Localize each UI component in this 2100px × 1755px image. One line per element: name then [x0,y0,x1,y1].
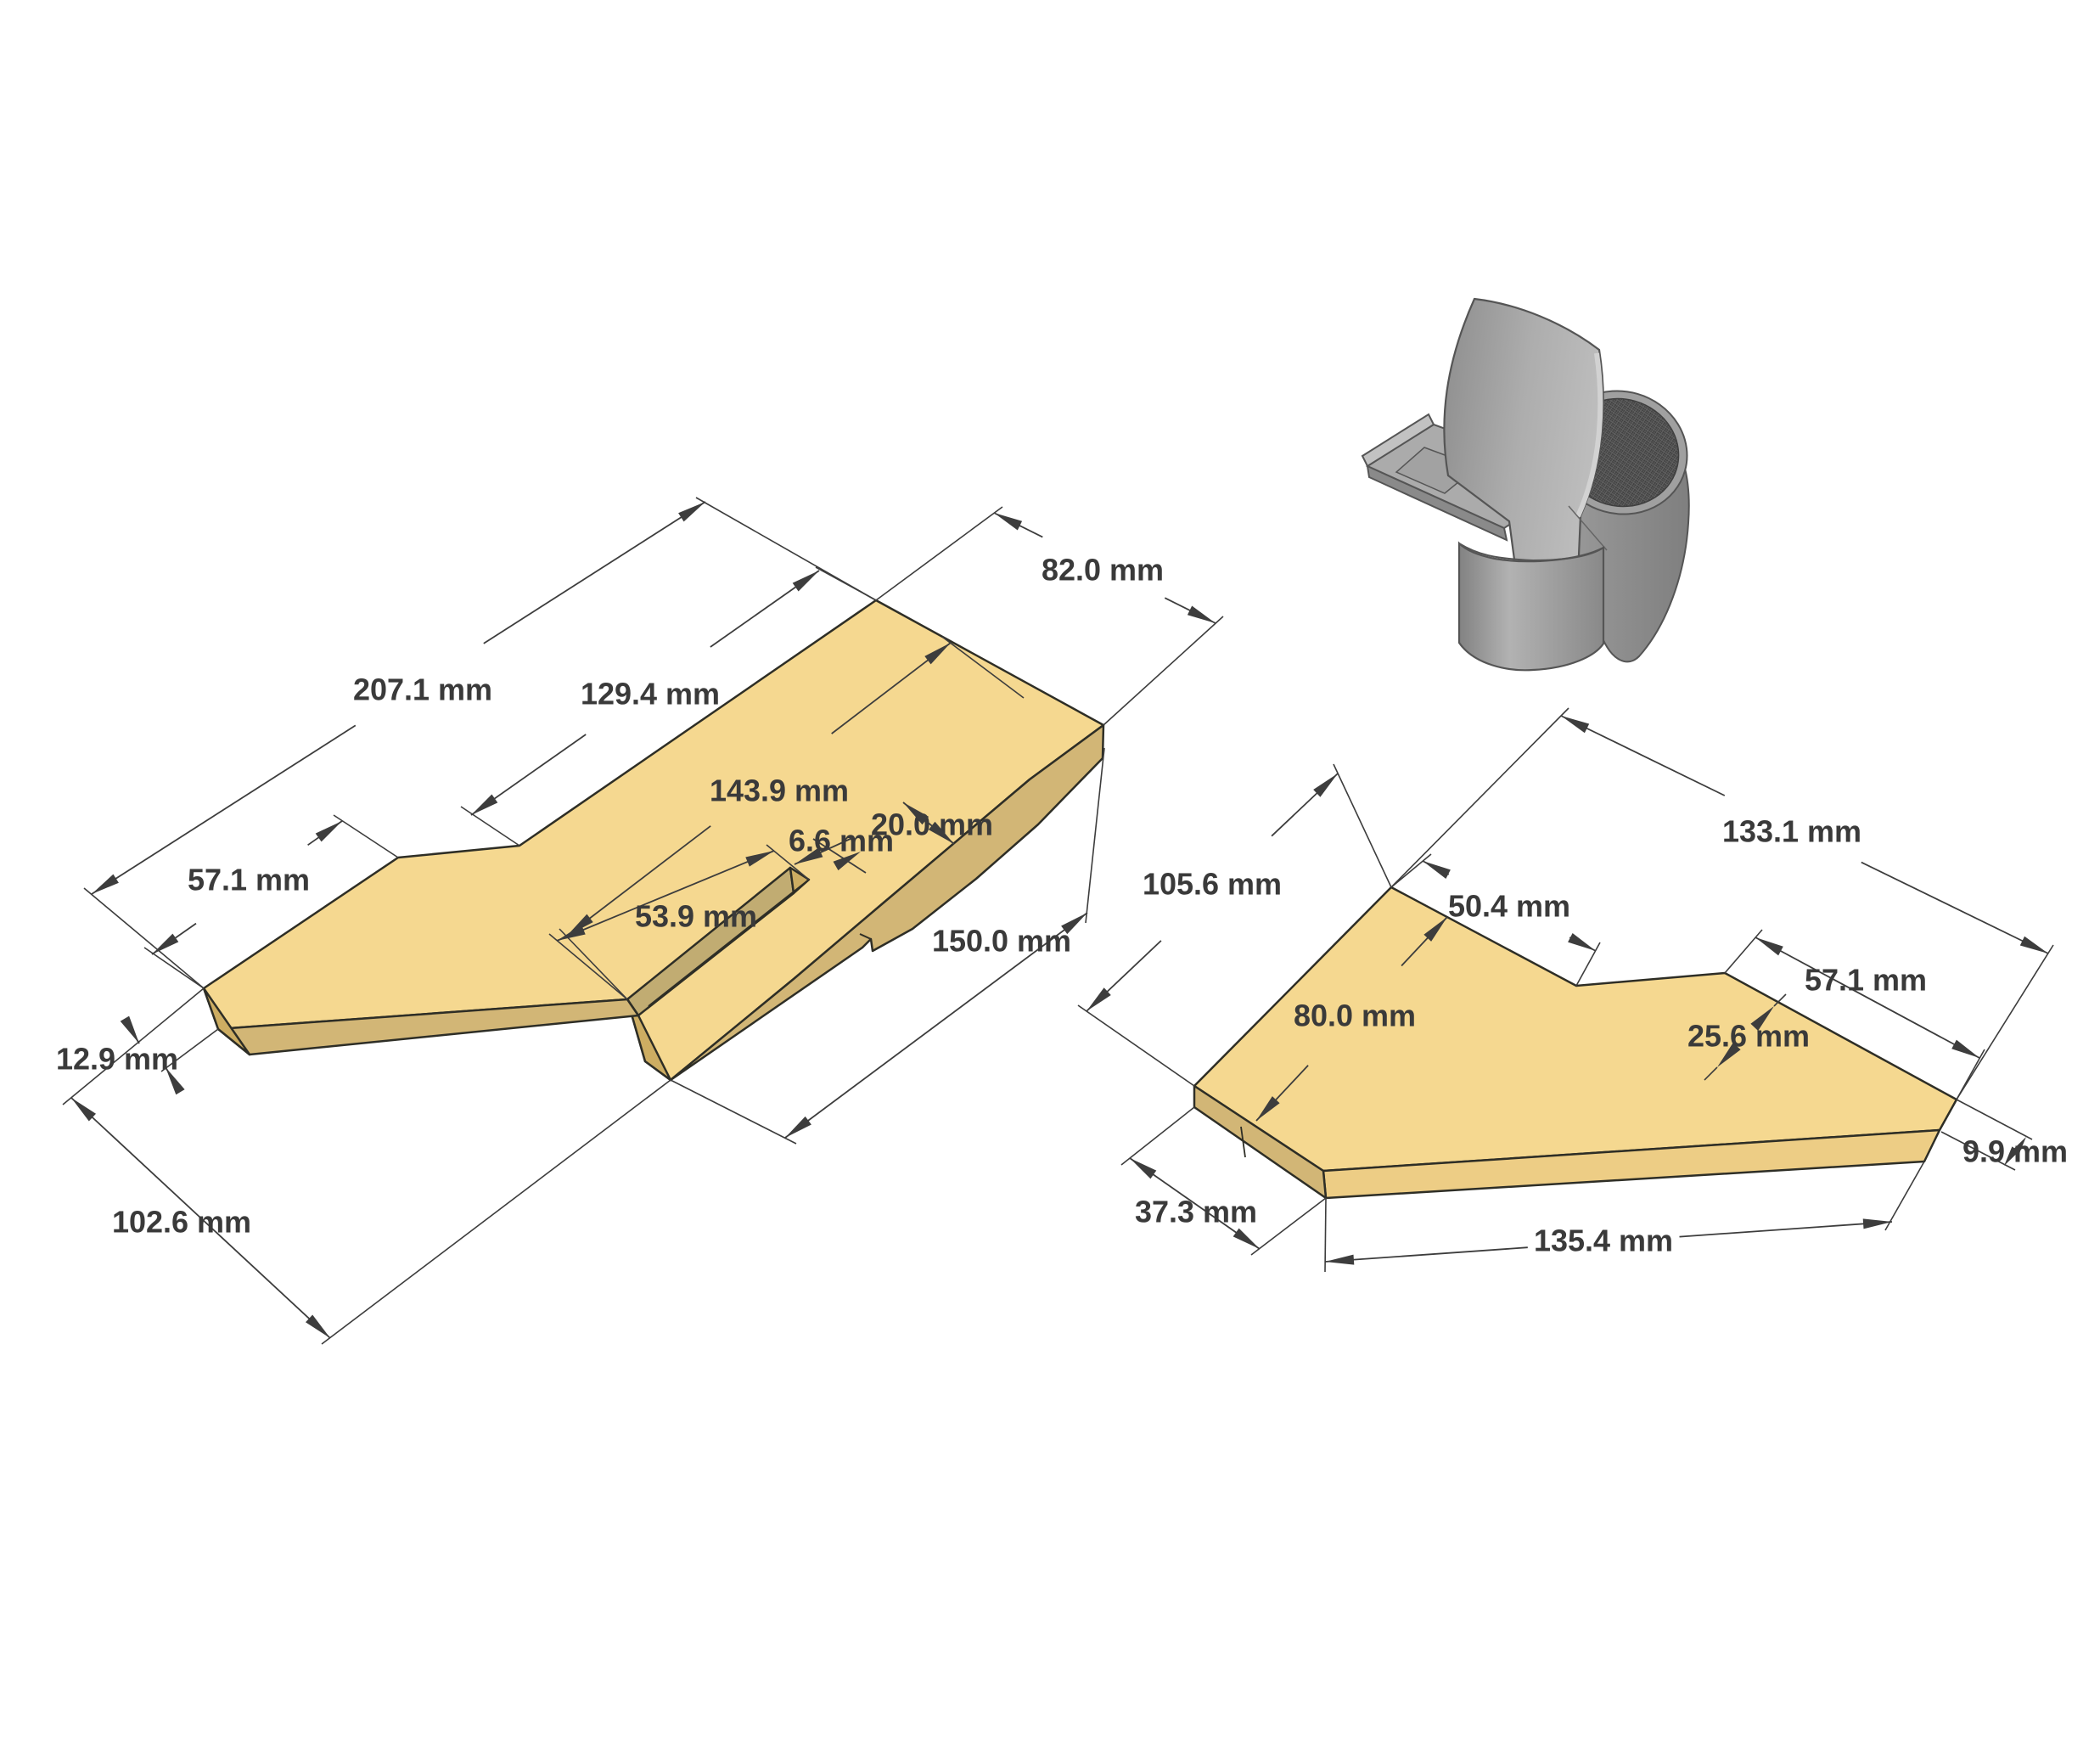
svg-text:57.1 mm: 57.1 mm [1805,962,1927,997]
svg-text:37.3 mm: 37.3 mm [1135,1194,1257,1229]
svg-text:82.0 mm: 82.0 mm [1042,552,1164,587]
svg-text:53.9 mm: 53.9 mm [635,898,757,933]
svg-text:135.4 mm: 135.4 mm [1534,1223,1673,1257]
svg-text:50.4 mm: 50.4 mm [1448,888,1570,923]
svg-text:20.0 mm: 20.0 mm [871,807,993,841]
svg-text:80.0 mm: 80.0 mm [1294,998,1416,1032]
svg-text:105.6 mm: 105.6 mm [1143,866,1282,901]
svg-text:133.1 mm: 133.1 mm [1722,813,1861,848]
svg-text:207.1 mm: 207.1 mm [353,672,492,706]
svg-text:12.9 mm: 12.9 mm [56,1041,178,1076]
svg-text:102.6 mm: 102.6 mm [112,1204,251,1239]
svg-text:143.9 mm: 143.9 mm [710,773,849,807]
svg-text:57.1 mm: 57.1 mm [188,862,310,897]
svg-text:150.0 mm: 150.0 mm [932,923,1071,958]
svg-text:25.6 mm: 25.6 mm [1687,1018,1810,1053]
svg-text:129.4 mm: 129.4 mm [581,676,720,711]
